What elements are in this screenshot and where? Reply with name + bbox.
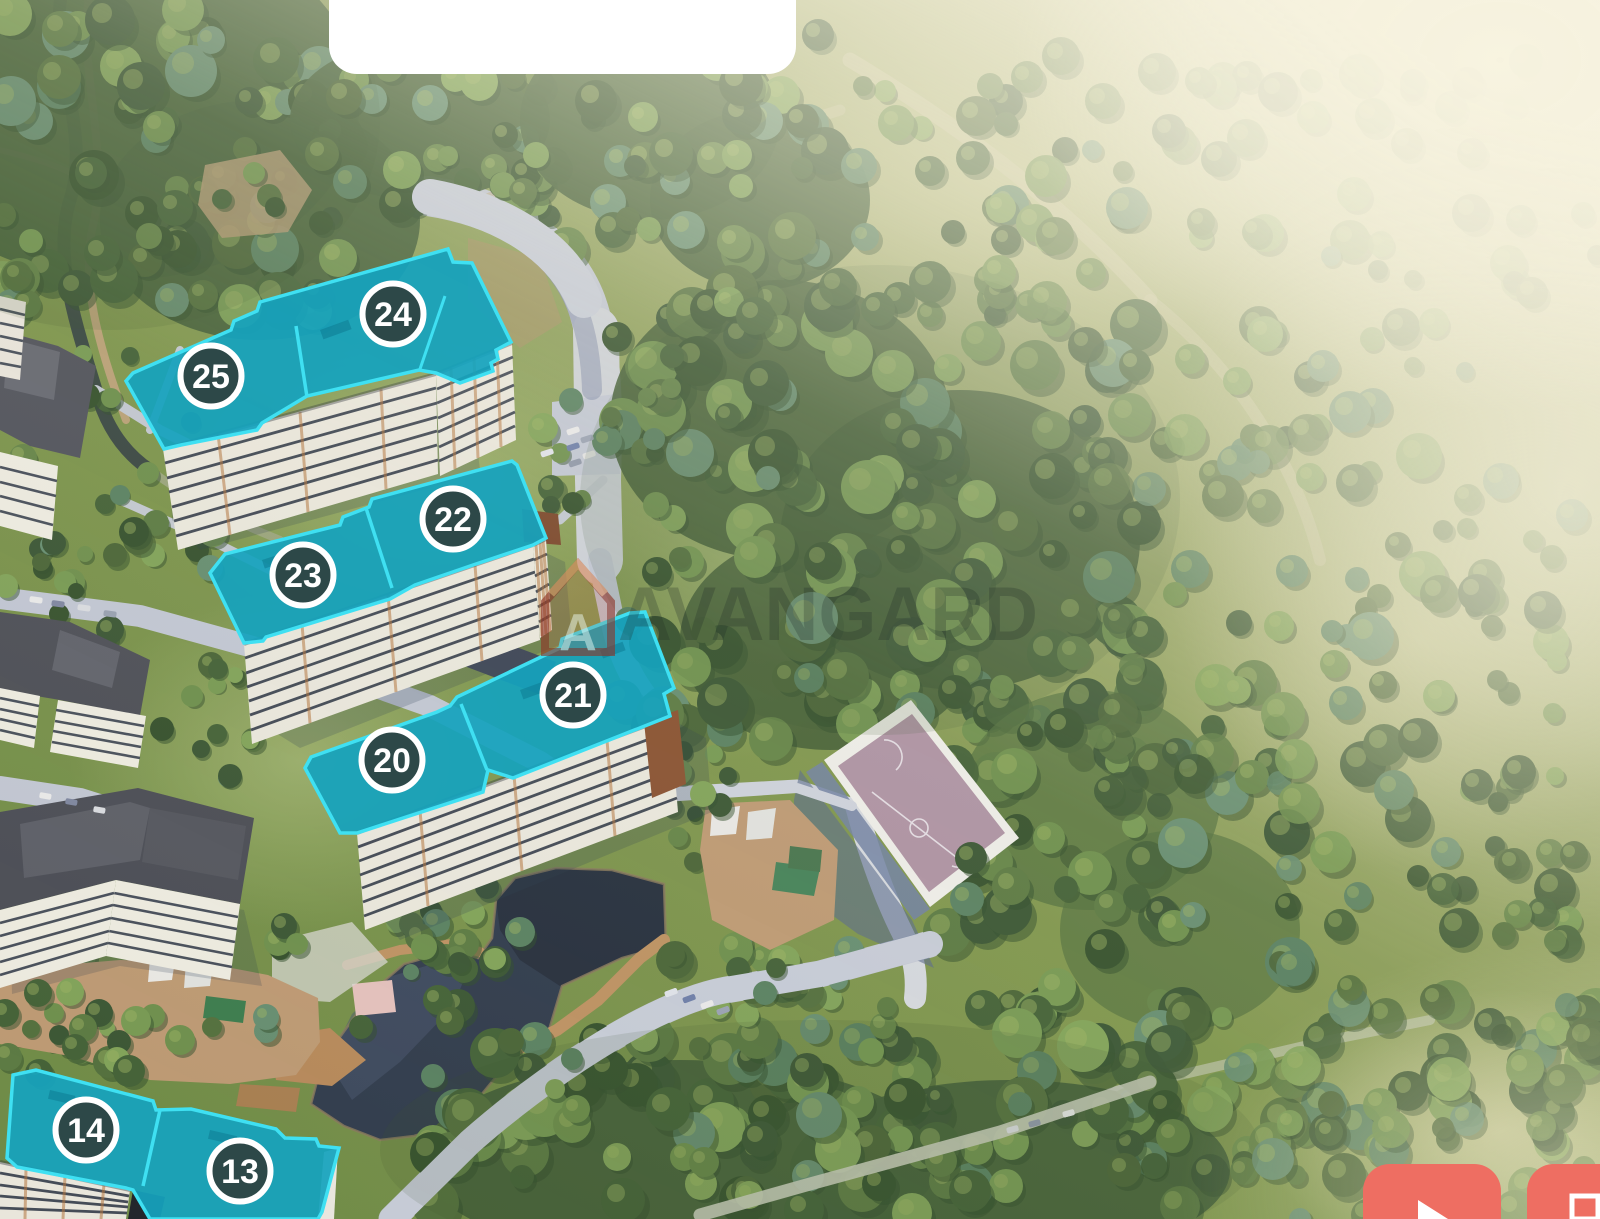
svg-text:24: 24 (374, 296, 412, 334)
svg-text:13: 13 (221, 1153, 259, 1191)
svg-text:14: 14 (67, 1112, 105, 1150)
svg-text:A: A (559, 604, 597, 662)
svg-text:25: 25 (192, 358, 230, 396)
svg-text:AVANGARD: AVANGARD (618, 572, 1038, 657)
svg-text:22: 22 (434, 501, 472, 539)
svg-text:23: 23 (284, 557, 322, 595)
svg-text:21: 21 (554, 677, 592, 715)
svg-text:20: 20 (373, 742, 411, 780)
